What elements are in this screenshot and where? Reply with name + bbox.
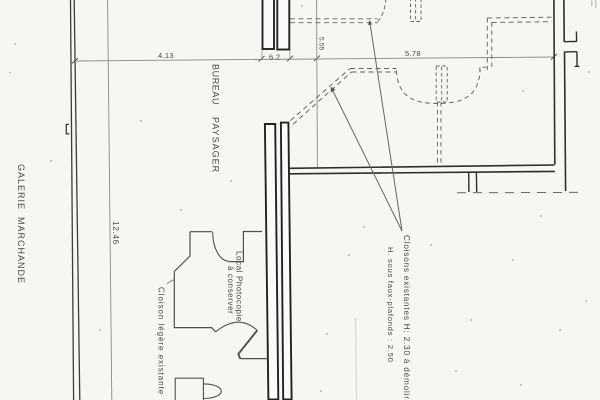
svg-text:BUREAU: BUREAU xyxy=(211,64,221,105)
svg-text:12.46: 12.46 xyxy=(111,221,120,245)
svg-text:4.13: 4.13 xyxy=(158,51,174,60)
svg-text:GALERIE MARCHANDE: GALERIE MARCHANDE xyxy=(16,164,26,284)
svg-text:H. sous faux-plafonds : 2.50: H. sous faux-plafonds : 2.50 xyxy=(386,247,395,363)
svg-text:à conserver: à conserver xyxy=(226,266,235,314)
svg-text:5.78: 5.78 xyxy=(405,49,421,58)
svg-text:Cloison légère existante: Cloison légère existante xyxy=(157,287,166,395)
svg-text:6.2: 6.2 xyxy=(269,53,280,62)
svg-text:Cloisons existantes H: 2.30: Cloisons existantes H: 2.30 à démolir xyxy=(402,235,411,400)
svg-text:PAYSAGER: PAYSAGER xyxy=(211,117,221,173)
svg-text:5.55: 5.55 xyxy=(318,37,325,51)
